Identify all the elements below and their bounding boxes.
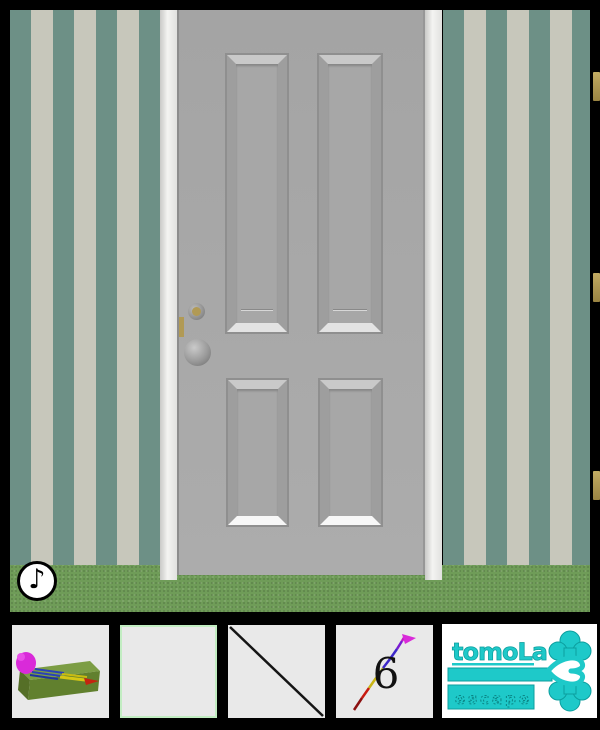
door[interactable]: [177, 10, 425, 575]
inventory-slot-selected-empty[interactable]: [120, 625, 217, 718]
brand-subtitle: escape: [455, 690, 532, 708]
door-frame-left: [160, 10, 177, 580]
dart-icon: 6: [336, 625, 433, 718]
door-hinge-top: [593, 72, 600, 101]
music-toggle-button[interactable]: ♪: [17, 561, 57, 601]
door-hinge-bottom: [593, 471, 600, 500]
inventory-slot-pencil-box[interactable]: [12, 625, 109, 718]
key-logo-icon: tomoLa escape: [442, 624, 597, 718]
door-knob[interactable]: [184, 339, 211, 366]
door-panel-bottom-left: [226, 378, 289, 527]
door-hinge-middle: [593, 273, 600, 302]
game-stage: ♪: [0, 0, 600, 730]
inventory-slot-dart[interactable]: 6: [336, 625, 433, 718]
door-deadbolt-lock[interactable]: [188, 303, 205, 320]
dart-count-label: 6: [373, 649, 400, 698]
door-frame-right: [425, 10, 442, 580]
striped-wallpaper-right: [443, 10, 590, 565]
stick-icon: [228, 625, 325, 718]
brand-logo-panel: tomoLa escape: [442, 624, 597, 718]
door-panel-top-right: [317, 53, 383, 334]
door-panel-bottom-right: [318, 378, 383, 527]
music-note-icon: ♪: [28, 566, 45, 593]
pencil-box-icon: [12, 625, 109, 718]
heart-keyhole-shape: [548, 658, 583, 684]
striped-wallpaper-left: [10, 10, 160, 565]
brand-title: tomoLa: [452, 638, 547, 666]
door-panel-top-left: [225, 53, 289, 334]
inventory-slot-stick[interactable]: [228, 625, 325, 718]
door-edge-plate: [179, 317, 184, 337]
